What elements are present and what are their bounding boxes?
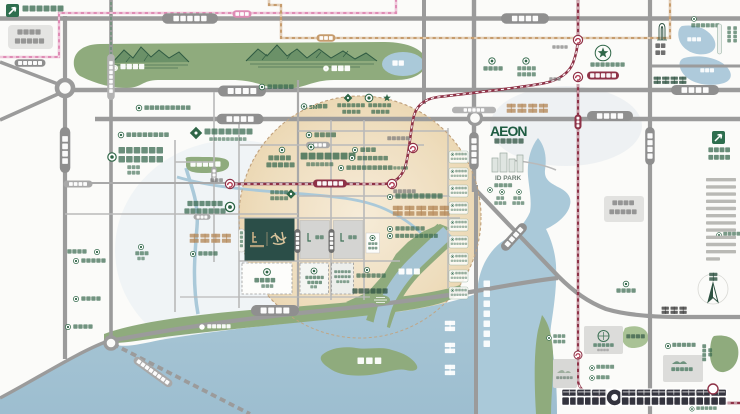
- svg-text:SM: SM: [309, 105, 318, 111]
- svg-text:ID PARK: ID PARK: [495, 175, 522, 182]
- svg-text:AEON: AEON: [490, 123, 527, 139]
